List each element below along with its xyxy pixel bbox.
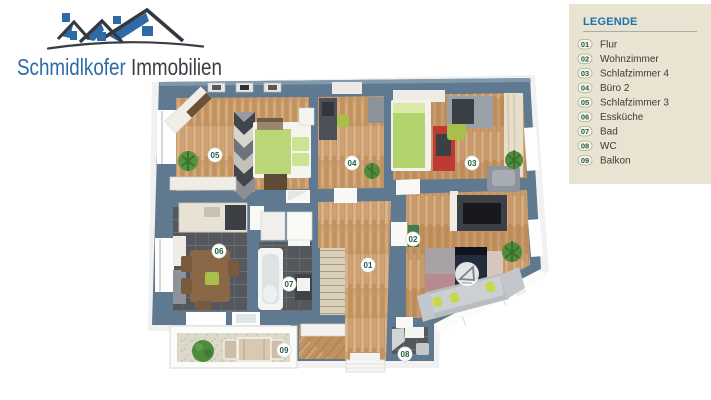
svg-text:08: 08	[581, 142, 589, 151]
svg-text:Bad: Bad	[600, 127, 618, 138]
svg-text:Büro 2: Büro 2	[600, 83, 630, 94]
svg-text:05: 05	[211, 151, 220, 160]
svg-text:04: 04	[581, 84, 590, 93]
svg-text:02: 02	[409, 235, 418, 244]
svg-text:Wohnzimmer: Wohnzimmer	[600, 54, 659, 65]
svg-text:Schmidlkofer Immobilien: Schmidlkofer Immobilien	[17, 54, 222, 80]
svg-text:Schlafzimmer 3: Schlafzimmer 3	[600, 98, 669, 109]
svg-text:06: 06	[581, 113, 589, 122]
svg-text:04: 04	[348, 159, 357, 168]
svg-text:Balkon: Balkon	[600, 156, 631, 167]
svg-text:WC: WC	[600, 141, 617, 152]
svg-text:05: 05	[581, 98, 589, 107]
svg-text:LEGENDE: LEGENDE	[583, 16, 638, 28]
svg-text:03: 03	[581, 69, 589, 78]
svg-text:Essküche: Essküche	[600, 112, 644, 123]
svg-text:01: 01	[581, 40, 589, 49]
svg-text:08: 08	[401, 350, 410, 359]
svg-text:02: 02	[581, 55, 589, 64]
svg-text:Schlafzimmer 4: Schlafzimmer 4	[600, 69, 669, 80]
svg-text:01: 01	[364, 261, 373, 270]
svg-text:07: 07	[285, 280, 294, 289]
svg-text:09: 09	[581, 156, 589, 165]
svg-text:06: 06	[215, 247, 224, 256]
svg-text:03: 03	[468, 159, 477, 168]
svg-text:09: 09	[280, 346, 289, 355]
svg-text:Flur: Flur	[600, 40, 618, 51]
svg-text:07: 07	[581, 127, 589, 136]
